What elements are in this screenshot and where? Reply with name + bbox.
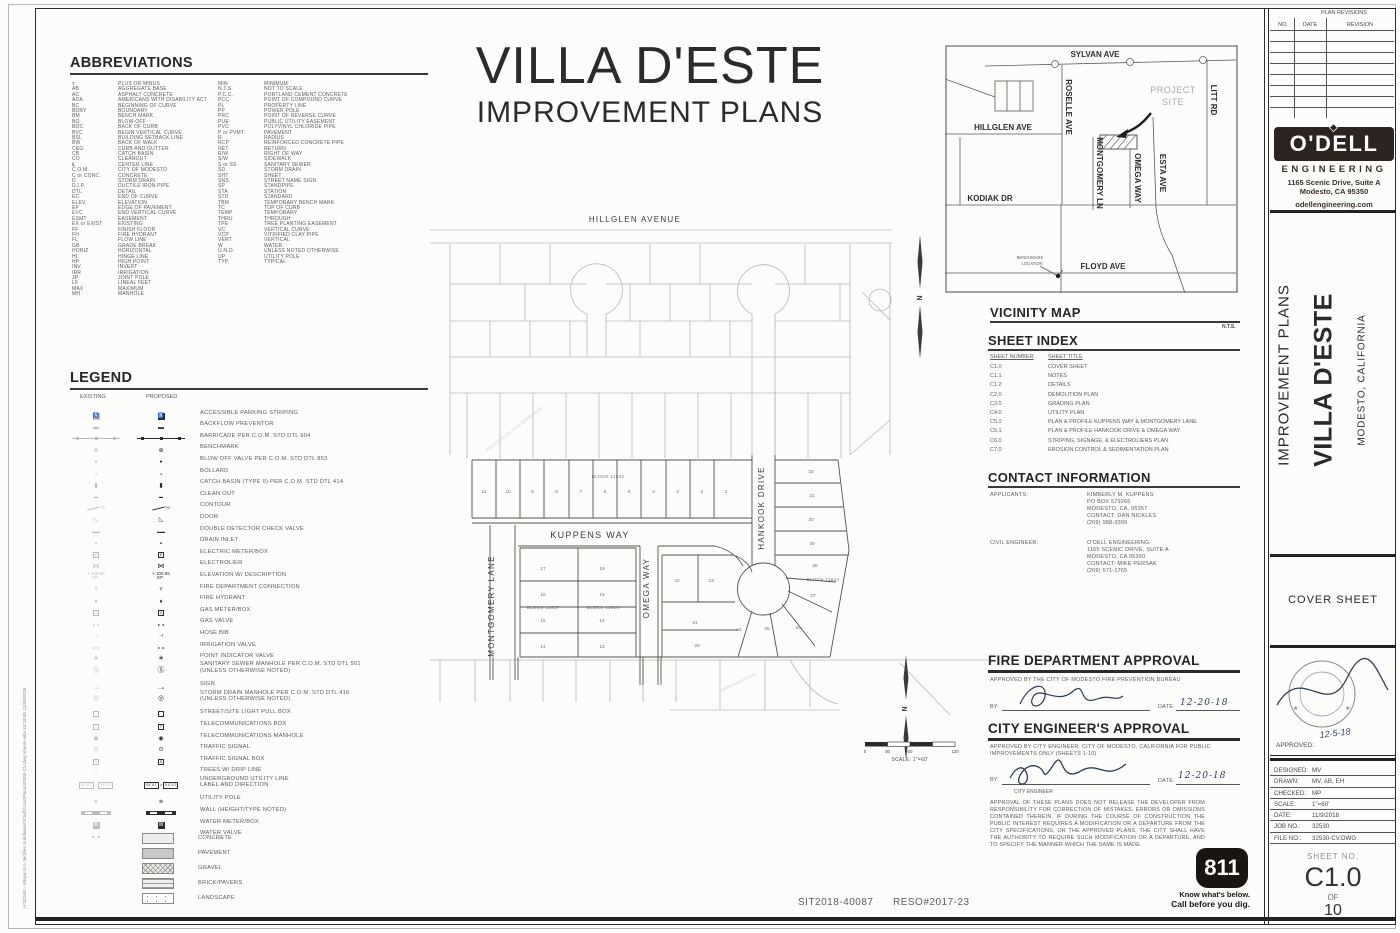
legend-swatch-row: BRICK/PAVERS <box>142 876 242 891</box>
abbr-col-2: MINMINIMUMN.T.S.NOT TO SCALEP.C.C.PORTLA… <box>218 82 348 265</box>
lot-number: 24 <box>736 627 742 633</box>
block-label: BLOCK 11614 <box>807 577 840 582</box>
titleblock-row-label: DRAWN: <box>1270 776 1312 786</box>
watervalve-icon: ►◄ <box>92 834 101 840</box>
faint-annotation: LAURA SUBDIVISION <box>718 672 756 693</box>
sheet-number-cell: C7.0 <box>990 446 1048 455</box>
sheet-index-row: C1.0COVER SHEET <box>990 363 1242 372</box>
titleblock-section-line <box>1270 554 1396 557</box>
titleblock-row-label: DESIGNED: <box>1270 765 1312 775</box>
svg-text:★: ★ <box>1293 705 1298 712</box>
sheet-title-cell: DETAILS <box>1048 381 1071 390</box>
page-title: VILLA D'ESTE <box>430 36 870 96</box>
contact-line: MODESTO, CA 95350 <box>1087 554 1169 561</box>
legend-label: LANDSCAPE <box>198 895 235 902</box>
legend-label: FIRE DEPARTMENT CONNECTION <box>200 584 426 591</box>
sheet-index-heading: SHEET INDEX <box>988 333 1078 348</box>
abbreviations-heading: ABBREVIATIONS <box>70 55 193 71</box>
bottom-border-band <box>35 917 1396 921</box>
legend-row: WALL (HEIGHT/TYPE NOTED) <box>70 801 426 813</box>
utlabel-icon: XX"UT>XX"UT <box>79 782 114 788</box>
legend-swatch-row: CONCRETE <box>142 831 242 846</box>
sheet-index-row: C6.0STRIPING, SIGNAGE, & ELECTROLIERS PL… <box>990 437 1242 446</box>
benchmark-label: LOCATION <box>1021 261 1042 266</box>
vicinity-street: KODIAK DR <box>967 194 1013 203</box>
contact-underline <box>988 486 1240 488</box>
legend-row: SSTRAFFIC SIGNAL BOX <box>70 750 426 762</box>
resolution-number: RESO#2017-23 <box>893 897 970 908</box>
contact-line: PO BOX 579266 <box>1087 499 1156 506</box>
lot-number: 10 <box>506 489 512 495</box>
legend-label: TRAFFIC SIGNAL <box>200 744 426 751</box>
legend-label: WATER METER/BOX <box>200 819 426 826</box>
legend-label: DRAIN INLET <box>200 537 426 544</box>
lot-number: 16 <box>599 566 605 572</box>
legend-row: ►◄►◄WATER VALVE <box>70 825 426 837</box>
abbreviations-underline <box>70 73 428 75</box>
titleblock-location: MODESTO, CALIFORNIA <box>1357 314 1368 445</box>
project-site-label: SITE <box>1162 97 1184 107</box>
legend-label: DOOR <box>200 514 426 521</box>
engineer-stamp: ★ ★ 12-5-18 <box>1272 650 1394 748</box>
legend-swatch-row: LANDSCAPE <box>142 891 242 906</box>
site-plan-drawing: N N 0 30 60 120 SCALE: 1"=60' HILLGLEN A… <box>430 210 990 768</box>
titleblock-row-label: FILE NO.: <box>1270 833 1312 843</box>
vicinity-street: ROSELLE AVE <box>1064 79 1073 135</box>
legend-label: GAS VALVE <box>200 618 426 625</box>
sheet-index-row: C7.0EROSION CONTROL & SEDIMENTATION PLAN <box>990 446 1242 455</box>
legend-swatch-row: PAVEMENT <box>142 846 242 861</box>
firm-address1: 1165 Scenic Drive, Suite A <box>1272 178 1396 187</box>
city-approval-underline <box>988 738 1240 741</box>
sheet-title-cell: NOTES <box>1048 372 1067 381</box>
north-arrow-label: N <box>902 706 909 711</box>
revisions-row-line <box>1270 63 1394 64</box>
titleblock-row: FILE NO.:32530-CV.DWG <box>1270 833 1396 844</box>
lot-number: 30 <box>808 517 814 523</box>
legend-label: SANITARY SEWER MANHOLE PER C.O.M. STD DT… <box>200 661 426 674</box>
sheet-index-col-number: SHEET NUMBER <box>990 354 1034 360</box>
sheet-title-cell: EROSION CONTROL & SEDIMENTATION PLAN <box>1048 446 1169 455</box>
legend-row: ●●BLOW OFF VALVE PER C.O.M. STD DTL 853 <box>70 450 426 462</box>
legend-heading: LEGEND <box>70 370 132 386</box>
lot-number: 9 <box>531 489 534 495</box>
contact-line: (209) 988-3399 <box>1087 520 1156 527</box>
concrete-swatch <box>142 833 174 844</box>
revisions-row-line <box>1270 96 1394 97</box>
page-subtitle: IMPROVEMENT PLANS <box>430 96 870 130</box>
legend-proposed-symbol: XX"UT>XX"UT <box>122 773 200 791</box>
legend-label: ELEVATION W/ DESCRIPTION <box>200 572 426 579</box>
legend-rows: ♿♿ACCESSIBLE PARKING STRIPING▬▬BACKFLOW … <box>70 404 426 836</box>
legend-row: GGGAS METER/BOX <box>70 601 426 613</box>
legend-label: POINT INDICATOR VALVE <box>200 653 426 660</box>
legend-row: STREET/SITE LIGHT PULL BOX <box>70 704 426 716</box>
street-label-omega: OMEGA WAY <box>642 558 651 619</box>
titleblock-row: DRAWN:MV, AB, EH <box>1270 776 1396 787</box>
lot-number: 8 <box>555 489 558 495</box>
contact-line: 1165 SCENIC DRIVE, SUITE A <box>1087 547 1169 554</box>
legend-existing-header: EXISTING <box>80 394 106 400</box>
firm-address2: Modesto, CA 95350 <box>1272 187 1396 196</box>
titleblock-row-value: MV, AB, EH <box>1312 776 1344 786</box>
svg-text:60: 60 <box>907 749 913 754</box>
legend-swatches: CONCRETEPAVEMENTGRAVELBRICK/PAVERSLANDSC… <box>142 831 242 906</box>
legend-row: ▮▮CATCH BASIN (TYPE II) PER C.O.M. STD D… <box>70 474 426 486</box>
legend-row: ◺◺DOOR <box>70 508 426 520</box>
titleblock-row: JOB NO.:32530 <box>1270 821 1396 832</box>
titleblock-row-label: CHECKED: <box>1270 788 1312 798</box>
sheet-number-cell: C3.0 <box>990 400 1048 409</box>
legend-row: ◉◉TELECOMMUNICATIONS MANHOLE <box>70 727 426 739</box>
legend-label: IRRIGATION VALVE <box>200 642 426 649</box>
lot-number: 14 <box>540 644 546 650</box>
legend-existing-symbol: ►◄ <box>70 825 122 843</box>
plot-file-path: H:\32530 - Wispa Grn. Nickles Subdivisio… <box>22 558 27 908</box>
sheet-number-cell: C6.0 <box>990 437 1048 446</box>
sheet-index-row: C4.0UTILITY PLAN <box>990 409 1242 418</box>
ssmh-icon: Ⓢ <box>93 668 100 674</box>
legend-row: ⓈⓈSANITARY SEWER MANHOLE PER C.O.M. STD … <box>70 659 426 676</box>
titleblock-row: DESIGNED:MV <box>1270 765 1396 776</box>
titleblock-row-value: MP <box>1312 788 1321 798</box>
lot-number: 32 <box>808 469 814 475</box>
fire-approval-heading: FIRE DEPARTMENT APPROVAL <box>988 653 1200 668</box>
ut-label: XX"UT <box>98 782 113 788</box>
titleblock-row-value: MV <box>1312 765 1321 775</box>
stamp-date: 12-5-18 <box>1319 726 1351 740</box>
lot-number: 28 <box>812 563 818 569</box>
lot-number: 1 <box>725 489 728 495</box>
sheet-title-cell: COVER SHEET <box>1048 363 1087 372</box>
titleblock-row-value: 32530 <box>1312 821 1329 831</box>
sheet-index-row: C2.0DEMOLITION PLAN <box>990 391 1242 400</box>
titleblock-section-line <box>1270 645 1396 648</box>
city-signature <box>1002 746 1147 788</box>
engineer-label: CIVIL ENGINEER: <box>990 540 1038 547</box>
legend-row: ▬▬BACKFLOW PREVENTOR <box>70 416 426 428</box>
call-811-logo: 811 <box>1196 848 1248 888</box>
titleblock-row-value: 1"=60' <box>1312 799 1329 809</box>
sheet-total: 10 <box>1270 902 1396 920</box>
revisions-col-no: NO. <box>1272 22 1294 28</box>
applicants-block: KIMBERLY M. KUPPENSPO BOX 579266MODESTO,… <box>1087 492 1156 527</box>
legend-label: BRICK/PAVERS <box>198 880 242 887</box>
svg-text:0: 0 <box>864 749 867 754</box>
legend-label: ACCESSIBLE PARKING STRIPING <box>200 410 426 417</box>
legend-row: ⋈⋈ELECTROLIER <box>70 555 426 567</box>
city-signer-title: CITY ENGINEER <box>1014 789 1053 795</box>
contact-line: CONTACT: MIKE PERSAK <box>1087 561 1169 568</box>
legend-row: ♦♦FIRE HYDRANT <box>70 590 426 602</box>
legend-label: CATCH BASIN (TYPE II) PER C.O.M. STD DTL… <box>200 479 426 486</box>
benchmark-label: BENCHMARK <box>1017 255 1044 260</box>
approval-note: APPROVAL OF THESE PLANS DOES NOT RELEASE… <box>990 800 1205 849</box>
sheet-index-col-title: SHEET TITLE <box>1048 354 1083 360</box>
fire-by-label: BY: <box>990 704 999 711</box>
firm-subname: ENGINEERING <box>1272 164 1396 175</box>
lot-number: 31 <box>809 493 815 499</box>
legend-label: CONTOUR <box>200 502 426 509</box>
lot-number: 16 <box>540 592 546 598</box>
legend-row: ▬▬CLEAN OUT <box>70 485 426 497</box>
abbr-key: MH <box>72 292 118 297</box>
vicinity-street: MONTGOMERY LN <box>1095 137 1104 209</box>
lot-number: 7 <box>579 489 582 495</box>
scale-bar: 0 30 60 120 SCALE: 1"=60' <box>864 742 960 763</box>
legend-row: ▬▬▬▬DOUBLE DETECTOR CHECK VALVE <box>70 520 426 532</box>
utlabel-icon: XX"UT>XX"UT <box>144 782 179 788</box>
pavement-swatch <box>142 848 174 859</box>
sheet-number-cell: C5.0 <box>990 418 1048 427</box>
legend-row: ⊣⊣HOSE BIB <box>70 624 426 636</box>
legend-row: ◎◎STORM DRAIN MANHOLE PER C.O.M. STD DTL… <box>70 687 426 704</box>
vicinity-street: HILLGLEN AVE <box>974 123 1032 132</box>
legend-label: TRAFFIC SIGNAL BOX <box>200 756 426 763</box>
city-by-label: BY: <box>990 777 999 784</box>
sdmh-icon: ◎ <box>158 696 164 702</box>
legend-label: DOUBLE DETECTOR CHECK VALVE <box>200 526 426 533</box>
abbr-definition: MANHOLE <box>118 292 144 297</box>
legend-row: YYFIRE DEPARTMENT CONNECTION <box>70 578 426 590</box>
vicinity-nts: N.T.S. <box>1222 324 1236 330</box>
legend-label: PAVEMENT <box>198 850 231 857</box>
fire-date-label: DATE: <box>1158 704 1175 711</box>
lot-number: 3 <box>676 489 679 495</box>
legend-existing-symbol: Ⓢ <box>70 659 122 677</box>
lot-number: 11 <box>482 489 487 495</box>
project-site-label: PROJECT <box>1150 85 1196 95</box>
sheet-title-cell: GRADING PLAN <box>1048 400 1090 409</box>
abbr-key: TYP. <box>218 260 264 265</box>
legend-row: ⊗⊗UTILITY POLE <box>70 790 426 802</box>
revisions-col-date: DATE <box>1294 22 1326 28</box>
legend-label: BENCHMARK <box>200 444 426 451</box>
titleblock-project-name: VILLA D'ESTE <box>1310 293 1339 467</box>
lot-number: 14 <box>599 618 605 624</box>
legend-proposed-symbol: S <box>122 750 200 768</box>
sheet-index-row: C5.1PLAN & PROFILE HANKOOK DRIVE & OMEGA… <box>990 427 1242 436</box>
legend-row: ►◄►◄GAS VALVE <box>70 613 426 625</box>
legend-row: ⊕⊕BENCHMARK <box>70 439 426 451</box>
lot-number: 4 <box>652 489 655 495</box>
sheet-number-cell: C1.2 <box>990 381 1048 390</box>
diamond-icon: ◆ <box>1330 122 1337 133</box>
firm-name: O'DELL <box>1290 131 1379 157</box>
sheet-index-row: C3.0GRADING PLAN <box>990 400 1242 409</box>
revisions-title: PLAN REVISIONS <box>1294 10 1394 16</box>
sheet-of-label: OF <box>1270 893 1396 902</box>
sheet-index-rows: C1.0COVER SHEETC1.1NOTESC1.2DETAILSC2.0D… <box>990 363 1242 455</box>
ut-label: XX"UT <box>79 782 94 788</box>
legend-label: TELECOMMUNICATIONS BOX <box>200 721 426 728</box>
sheet-number-cell: C2.0 <box>990 391 1048 400</box>
call-811-line1: Know what's below. <box>1150 890 1250 899</box>
legend-row: × 100.65EP× 100.65EPELEVATION W/ DESCRIP… <box>70 566 426 578</box>
brick-swatch <box>142 878 174 889</box>
legend-row: TTTELECOMMUNICATIONS BOX <box>70 715 426 727</box>
faint-annotation: PROPOSED HILLGLEN SUBDIVISION <box>485 405 543 452</box>
vicinity-street: FLOYD AVE <box>1081 262 1127 271</box>
legend-row: ♿♿ACCESSIBLE PARKING STRIPING <box>70 404 426 416</box>
sheet-title-label: COVER SHEET <box>1270 594 1396 606</box>
sdmh-icon: ◎ <box>93 696 99 702</box>
city-approval-heading: CITY ENGINEER'S APPROVAL <box>988 721 1189 736</box>
north-arrow-label: N <box>917 295 924 300</box>
titleblock-row: DATE:11/9/2018 <box>1270 810 1396 821</box>
legend-label: GAS METER/BOX <box>200 607 426 614</box>
landscape-swatch <box>142 893 174 904</box>
legend-row: BARRICADE PER C.O.M. STD DTL 904 <box>70 427 426 439</box>
lot-number: 15 <box>540 618 546 624</box>
ssmh-icon: Ⓢ <box>158 668 165 674</box>
ut-arrow-icon: > <box>160 782 162 788</box>
vicinity-map: SYLVAN AVE ROSELLE AVE HILLGLEN AVE MONT… <box>945 45 1240 301</box>
sheet-number-cell: C4.0 <box>990 409 1048 418</box>
city-date-label: DATE: <box>1158 778 1175 785</box>
signalbox-icon: S <box>158 759 164 765</box>
fire-approval-underline <box>988 670 1240 673</box>
sheet-index-row: C5.0PLAN & PROFILE KUPPENS WAY & MONTGOM… <box>990 418 1242 427</box>
legend-label: BARRICADE PER C.O.M. STD DTL 904 <box>200 433 426 440</box>
revisions-row-line <box>1270 85 1394 86</box>
call-811-line2: Call before you dig. <box>1150 899 1250 909</box>
titleblock-section-line <box>1270 758 1396 761</box>
permit-number: SIT2018-40087 <box>798 897 873 908</box>
sheet-number-cell: C1.1 <box>990 372 1048 381</box>
legend-row: EEELECTRIC METER/BOX <box>70 543 426 555</box>
gravel-swatch <box>142 863 174 874</box>
legend-row: ►◄►◄IRRIGATION VALVE <box>70 636 426 648</box>
revisions-row-line <box>1270 74 1394 75</box>
sheet-no-label: SHEET NO. <box>1270 852 1396 861</box>
block-label: BLOCK 11617 <box>527 605 560 610</box>
engineer-block: O'DELL ENGINEERING1165 SCENIC DRIVE, SUI… <box>1087 540 1169 575</box>
applicants-label: APPLICANTS: <box>990 492 1028 499</box>
legend-label: SIGN <box>200 681 426 688</box>
legend-row: XX"UT>XX"UTXX"UT>XX"UTUNDERGROUND UTILIT… <box>70 773 426 790</box>
approved-label: APPROVED: <box>1276 742 1314 749</box>
lot-number: 5 <box>628 489 631 495</box>
sheet-title-cell: PLAN & PROFILE HANKOOK DRIVE & OMEGA WAY <box>1048 427 1180 436</box>
vicinity-underline <box>990 321 1240 323</box>
plan-sheet: H:\32530 - Wispa Grn. Nickles Subdivisio… <box>0 0 1400 933</box>
lot-number: 23 <box>708 578 714 584</box>
revisions-grid-line <box>1294 18 1295 118</box>
legend-row: —●—●SIGN <box>70 676 426 688</box>
titleblock-section-line <box>1270 210 1396 213</box>
legend-label: BOLLARD <box>200 468 426 475</box>
legend-row: ∗∗POINT INDICATOR VALVE <box>70 647 426 659</box>
revisions-row-line <box>1270 52 1394 53</box>
legend-label: CONCRETE <box>198 835 232 842</box>
sheet-title-cell: DEMOLITION PLAN <box>1048 391 1098 400</box>
vicinity-street: OMEGA WAY <box>1133 153 1142 203</box>
legend-label: BACKFLOW PREVENTOR <box>200 421 426 428</box>
lot-number: 26 <box>795 625 801 631</box>
legend-label: WALL (HEIGHT/TYPE NOTED) <box>200 807 426 814</box>
lot-number: 29 <box>809 541 815 547</box>
titleblock-info-table: DESIGNED:MVDRAWN:MV, AB, EHCHECKED:MPSCA… <box>1270 765 1396 844</box>
legend-label: ELECTROLIER <box>200 560 426 567</box>
legend-label: TREES W/ DRIP LINE <box>200 767 426 774</box>
titleblock-row-value: 11/9/2018 <box>1312 810 1339 820</box>
legend-label: UTILITY POLE <box>200 795 426 802</box>
street-label-hankook: HANKOOK DRIVE <box>757 466 766 550</box>
svg-text:★: ★ <box>1345 705 1350 712</box>
ut-arrow-icon: > <box>95 782 97 788</box>
contact-line: O'DELL ENGINEERING <box>1087 540 1169 547</box>
firm-website: odellengineering.com <box>1272 200 1396 209</box>
legend-row: 7070CONTOUR <box>70 497 426 509</box>
abbr-definition: TYPICAL <box>264 260 286 265</box>
titleblock-row: CHECKED:MP <box>1270 788 1396 799</box>
city-date-line <box>1176 753 1240 785</box>
legend-row: ●●BOLLARD <box>70 462 426 474</box>
lot-number: 25 <box>764 626 770 632</box>
legend-existing-symbol: XX"UT>XX"UT <box>70 773 122 791</box>
barricade-icon <box>141 436 181 441</box>
scale-label: SCALE: 1"=60' <box>891 757 928 763</box>
firm-logo: ◆ O'DELL <box>1274 127 1394 161</box>
project-site-hatch <box>1097 113 1151 149</box>
titleblock-row-label: SCALE: <box>1270 799 1312 809</box>
legend-underline <box>70 388 428 390</box>
street-label-hillglen: HILLGLEN AVENUE <box>589 215 681 224</box>
lot-number: 22 <box>674 578 680 584</box>
street-label-kuppens: KUPPENS WAY <box>550 530 629 540</box>
fire-signature <box>1015 678 1140 712</box>
revisions-col-revision: REVISION <box>1326 22 1394 28</box>
legend-existing-symbol: ◎ <box>70 687 122 705</box>
sheet-index-row: C1.1NOTES <box>990 372 1242 381</box>
sheet-number: C1.0 <box>1270 862 1396 893</box>
vicinity-street: SYLVAN AVE <box>1070 50 1120 59</box>
titleblock-row-label: JOB NO.: <box>1270 821 1312 831</box>
sheet-number-cell: C1.0 <box>990 363 1048 372</box>
revisions-grid-line <box>1326 18 1327 118</box>
legend-proposed-symbol: Ⓢ <box>122 659 200 677</box>
sheet-title-cell: PLAN & PROFILE KUPPENS WAY & MONTGOMERY … <box>1048 418 1197 427</box>
lot-number: 6 <box>604 489 607 495</box>
sheet-number-cell: C5.1 <box>990 427 1048 436</box>
svg-text:30: 30 <box>885 749 891 754</box>
block-label: BLOCK 11622 <box>592 474 625 479</box>
lot-number: 17 <box>540 566 546 572</box>
titleblock-divider-inner <box>1268 8 1269 925</box>
legend-row: ⊙⊙TRAFFIC SIGNAL <box>70 738 426 750</box>
legend-swatch-row: GRAVEL <box>142 861 242 876</box>
vicinity-street: ESTA AVE <box>1158 154 1167 193</box>
call-811-number: 811 <box>1204 855 1240 881</box>
street-label-montgomery: MONTGOMERY LANE <box>487 555 496 656</box>
contact-line: (209) 571-1765 <box>1087 568 1169 575</box>
legend-proposed-symbol: ◎ <box>122 687 200 705</box>
abbr-col-1: ±PLUS OR MINUSABAGGREGATE BASEACASPHALT … <box>72 82 207 298</box>
titleblock-divider <box>1264 8 1265 925</box>
titleblock-row-value: 32530-CV.DWG <box>1312 833 1356 843</box>
sheet-title-cell: UTILITY PLAN <box>1048 409 1084 418</box>
titleblock-section-line <box>1270 755 1396 756</box>
block-label: BLOCK 11616 <box>587 605 620 610</box>
contact-line: MODESTO, CA, 95357 <box>1087 506 1156 513</box>
lot-number: 27 <box>810 593 816 599</box>
barricade-icon <box>76 436 116 441</box>
titleblock-row: SCALE:1"=60' <box>1270 799 1396 810</box>
legend-label: FIRE HYDRANT <box>200 595 426 602</box>
titleblock-improvement-plans: IMPROVEMENT PLANS <box>1276 284 1293 466</box>
legend-label: GRAVEL <box>198 865 222 872</box>
